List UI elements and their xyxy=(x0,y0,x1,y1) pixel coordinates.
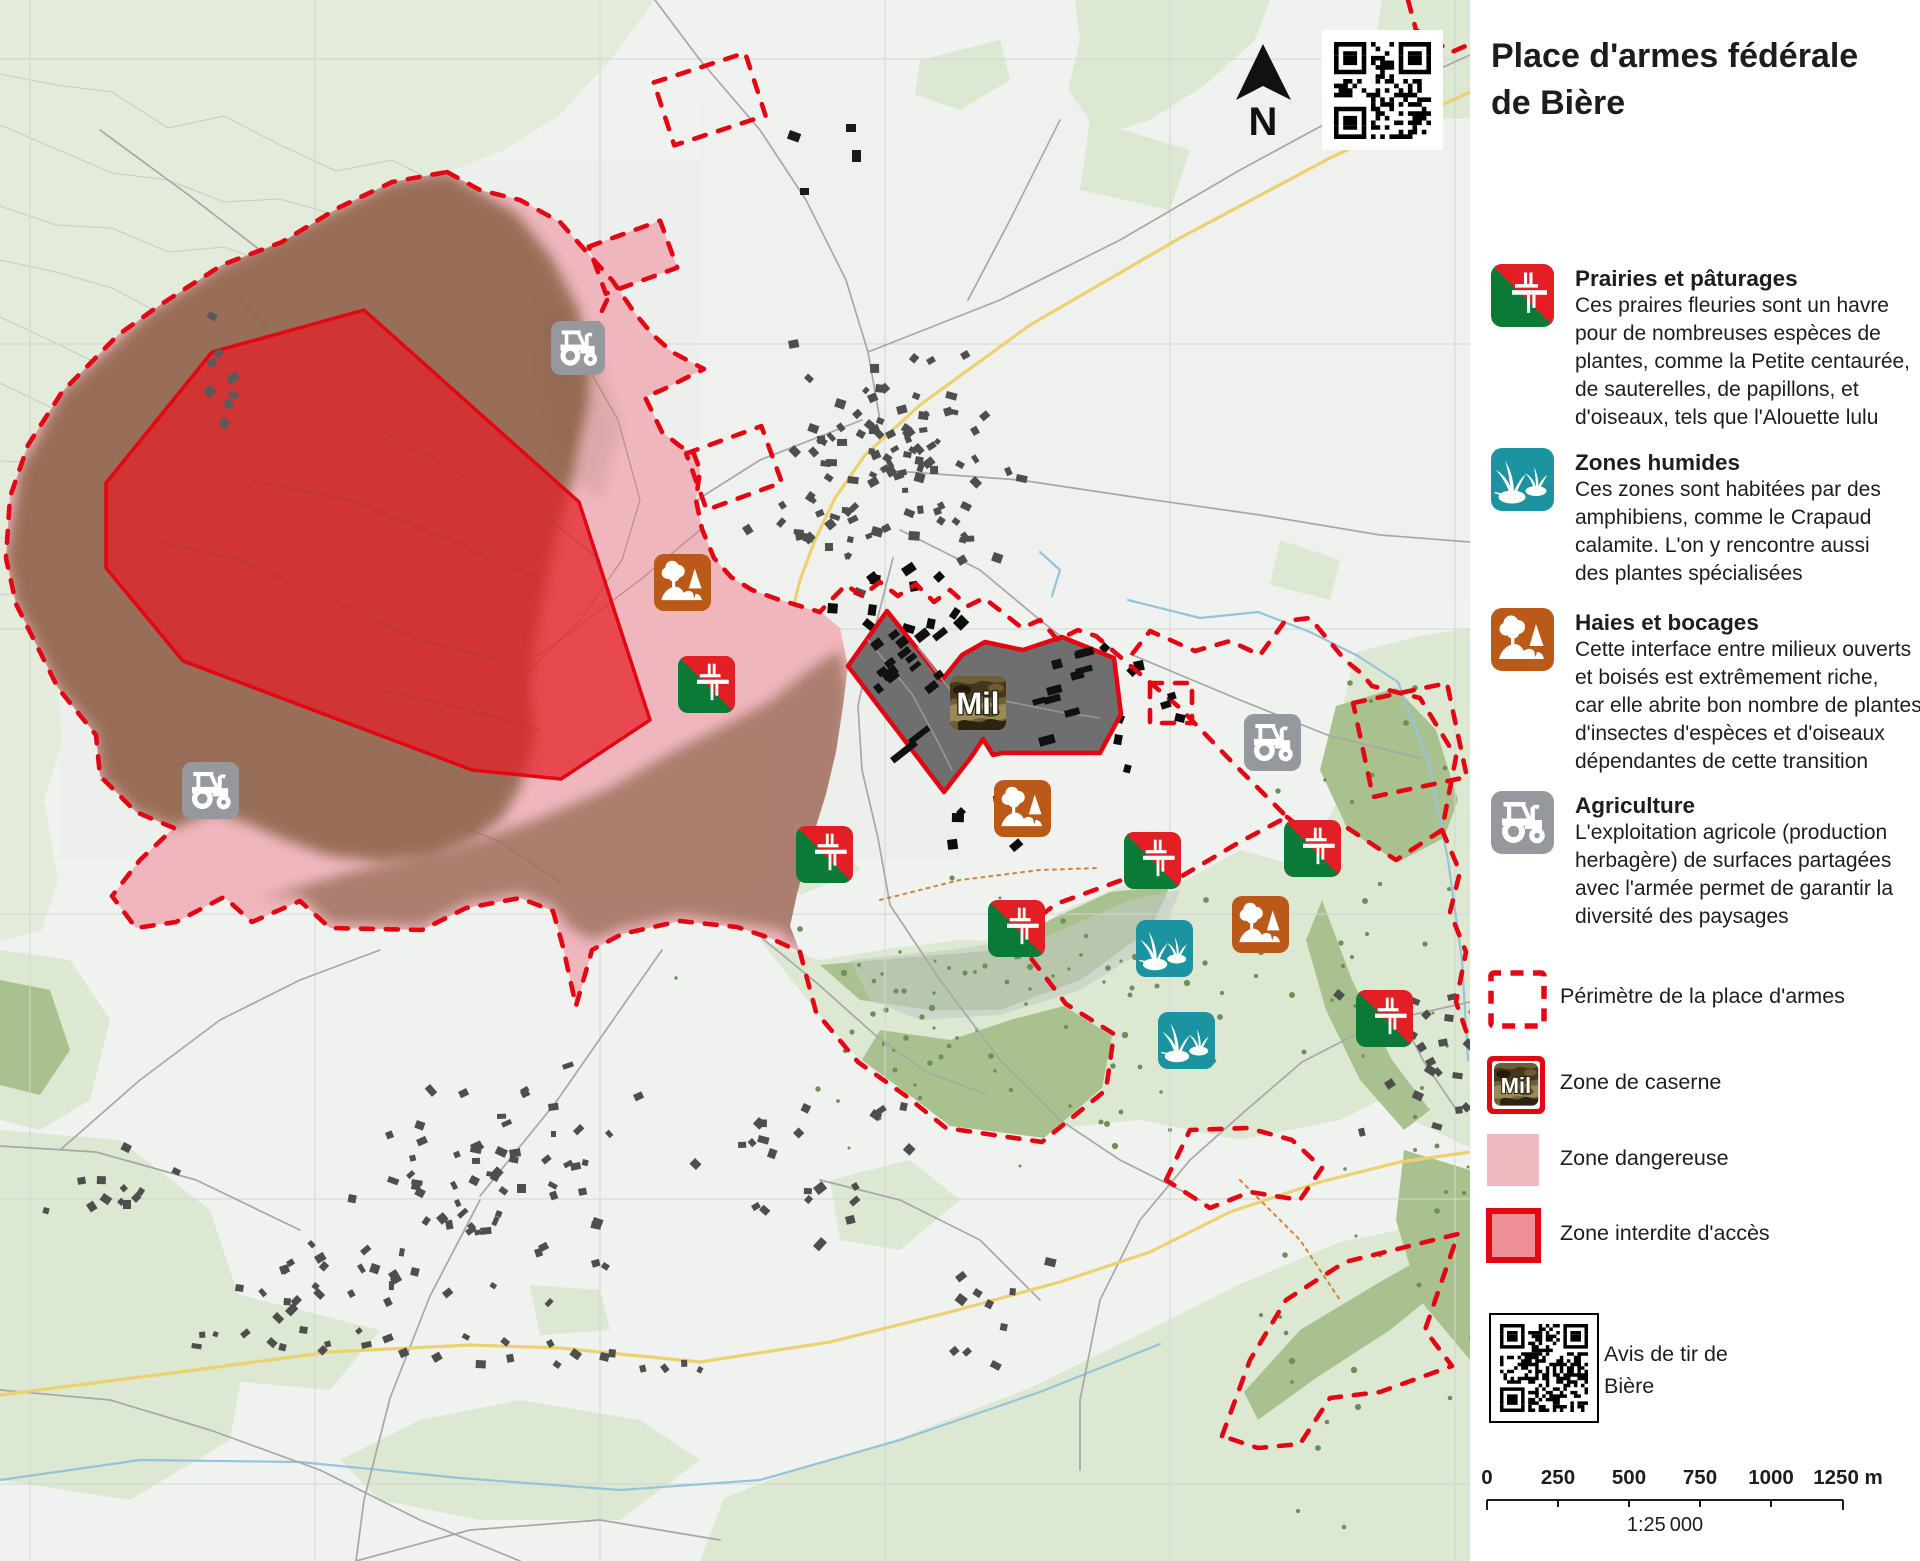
svg-text:1000: 1000 xyxy=(1748,1466,1794,1489)
svg-text:N: N xyxy=(1249,100,1278,144)
svg-text:500: 500 xyxy=(1612,1466,1646,1489)
svg-text:250: 250 xyxy=(1541,1466,1575,1489)
svg-text:0: 0 xyxy=(1481,1466,1492,1489)
svg-text:Mil: Mil xyxy=(956,686,999,721)
svg-text:Mil: Mil xyxy=(1501,1073,1532,1098)
svg-text:750: 750 xyxy=(1683,1466,1717,1489)
svg-text:1250 m: 1250 m xyxy=(1813,1466,1883,1489)
